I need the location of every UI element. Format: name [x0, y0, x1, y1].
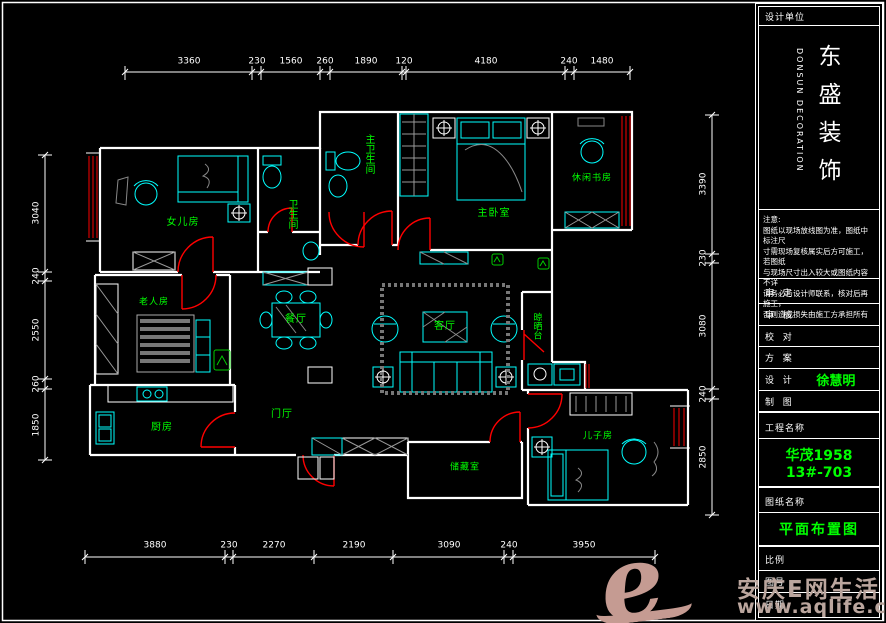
- field-row-design: 设 计 徐慧明: [759, 369, 879, 391]
- field-row-review: 审 核: [759, 304, 879, 326]
- scale-row: 比例: [759, 549, 879, 571]
- living-rug: [382, 285, 508, 393]
- dim-top-3: 260: [316, 58, 333, 67]
- dim-top-1: 230: [248, 58, 265, 67]
- design-unit-row: 设计单位: [759, 7, 879, 26]
- room-label-balcony: 晾晒台: [532, 313, 541, 340]
- title-block: 设计单位 DONSUN DECORATION 东盛装饰 注意: 图纸以现场放线图…: [755, 3, 883, 621]
- field-row-approve: 审 定: [759, 282, 879, 304]
- dim-top-4: 1890: [355, 58, 378, 67]
- dim-left-0: 3040: [33, 202, 42, 225]
- field-row-proof: 校 对: [759, 326, 879, 347]
- room-label-son: 儿子房: [583, 433, 613, 442]
- dim-right-1: 230: [700, 249, 709, 266]
- field-label: 审 核: [759, 308, 793, 321]
- note-title: 注意:: [763, 215, 875, 226]
- dim-left-3: 260: [33, 375, 42, 392]
- room-label-storage: 储藏室: [450, 464, 480, 473]
- dim-top-6: 4180: [475, 58, 498, 67]
- dim-right-0: 3390: [700, 173, 709, 196]
- company-name-en: DONSUN DECORATION: [795, 48, 804, 173]
- dim-bottom-5: 240: [500, 542, 517, 551]
- project-name-label: 工程名称: [759, 421, 805, 434]
- dim-bottom-4: 3090: [438, 542, 461, 551]
- field-label: 设 计: [759, 373, 793, 386]
- field-row-scheme: 方 案: [759, 347, 879, 369]
- designer-name: 徐慧明: [793, 370, 879, 389]
- room-label-study: 休闲书房: [572, 175, 612, 184]
- room-label-guest-bath: 卫生间: [286, 199, 296, 229]
- window-caps: [86, 153, 690, 448]
- dim-bottom-1: 230: [220, 542, 237, 551]
- furniture: [96, 118, 646, 500]
- design-unit-label: 设计单位: [759, 10, 805, 23]
- cad-sheet: 女儿房 卫生间 主卫生间 主卧室 休闲书房 餐厅 客厅 门厅 老人房 厨房 储藏…: [0, 0, 886, 623]
- dim-bottom-2: 2270: [263, 542, 286, 551]
- room-label-master-bed: 主卧室: [478, 209, 511, 219]
- field-row-draft: 制 图: [759, 391, 879, 413]
- dim-top-7: 240: [560, 58, 577, 67]
- company-name-cn: 东盛装饰: [815, 44, 838, 196]
- drawing-value-row: 平面布置图: [759, 513, 879, 547]
- room-label-daughter: 女儿房: [167, 218, 200, 228]
- watermark-site-url: www.aqlife.com: [737, 596, 886, 618]
- dim-left-2: 2550: [33, 319, 42, 342]
- dim-top-0: 3360: [178, 58, 201, 67]
- room-label-elder: 老人房: [139, 299, 169, 308]
- room-label-kitchen: 厨房: [151, 423, 173, 433]
- field-label: 审 定: [759, 286, 793, 299]
- floor-plan-drawing: [0, 0, 886, 623]
- drawing-label-row: 图纸名称: [759, 490, 879, 513]
- field-label: 制 图: [759, 395, 793, 408]
- dim-bottom-0: 3880: [144, 542, 167, 551]
- field-label: 方 案: [759, 351, 793, 364]
- dim-top-2: 1560: [280, 58, 303, 67]
- drawing-name-value: 平面布置图: [759, 519, 879, 539]
- drawing-name-label: 图纸名称: [759, 495, 805, 508]
- dim-left-1: 240: [33, 267, 42, 284]
- room-label-dining: 餐厅: [285, 315, 307, 325]
- field-label: 校 对: [759, 330, 793, 343]
- note-line: 寸需现场复核属实后方可施工，若图纸: [763, 247, 875, 268]
- title-block-inner: 设计单位 DONSUN DECORATION 东盛装饰 注意: 图纸以现场放线图…: [758, 6, 880, 618]
- elder-bed: [137, 315, 194, 372]
- project-value-row: 华茂1958 13#-703: [759, 439, 879, 488]
- dim-bottom-3: 2190: [343, 542, 366, 551]
- room-label-foyer: 门厅: [271, 410, 293, 420]
- project-name-value: 华茂1958 13#-703: [759, 445, 879, 481]
- note-line: 图纸以现场放线图为准，图纸中标注尺: [763, 226, 875, 247]
- room-label-master-bath: 主卫生间: [363, 134, 373, 174]
- logo-box: DONSUN DECORATION 东盛装饰: [759, 26, 879, 210]
- scale-label: 比例: [759, 553, 785, 566]
- dim-top-5: 120: [395, 58, 412, 67]
- room-label-living: 客厅: [434, 322, 456, 332]
- dim-right-4: 2850: [700, 446, 709, 469]
- dim-left-4: 1850: [33, 414, 42, 437]
- dim-right-2: 3080: [700, 315, 709, 338]
- dim-bottom-6: 3950: [573, 542, 596, 551]
- dim-right-3: 240: [700, 385, 709, 402]
- note-box: 注意: 图纸以现场放线图为准，图纸中标注尺 寸需现场复核属实后方可施工，若图纸 …: [759, 212, 879, 279]
- project-label-row: 工程名称: [759, 416, 879, 439]
- dim-top-8: 1480: [591, 58, 614, 67]
- walls: [90, 112, 688, 505]
